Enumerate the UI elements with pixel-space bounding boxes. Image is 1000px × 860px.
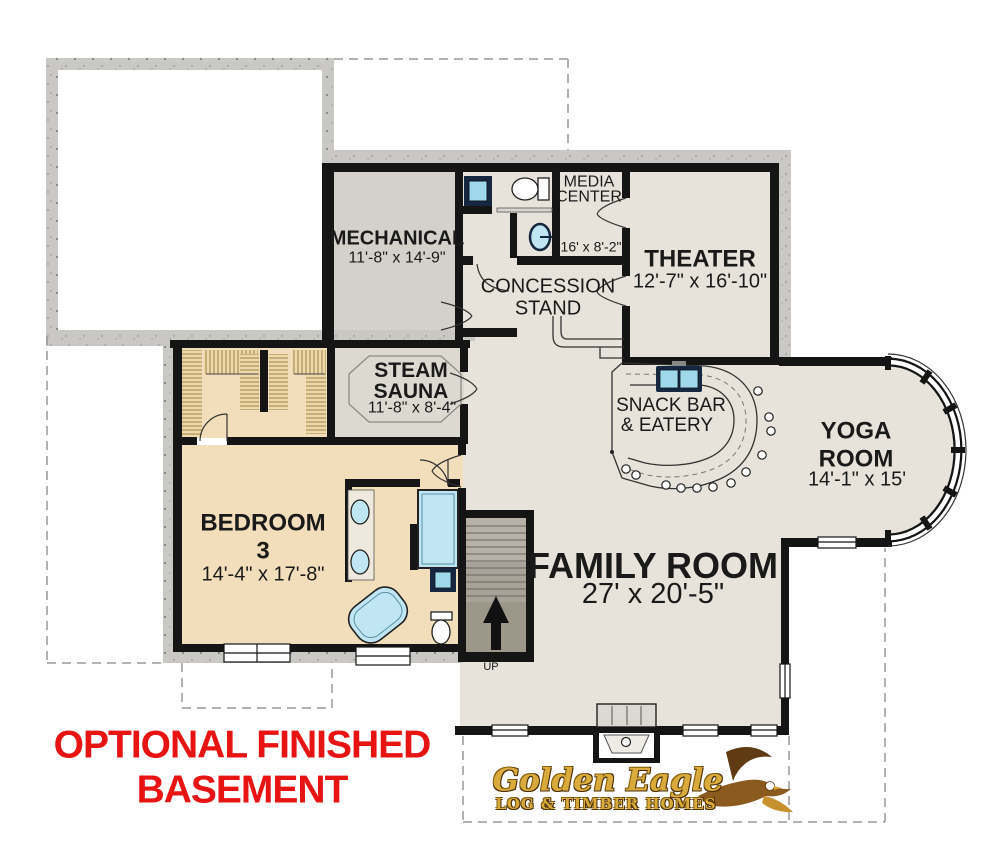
stairs-up-label: UP xyxy=(483,662,498,674)
room-dims-bedroom3: 14'-4" x 17'-8" xyxy=(201,565,324,586)
label-snack-bar-1: SNACK BAR xyxy=(616,396,726,416)
room-label-concession-1: CONCESSION xyxy=(481,277,615,298)
toilet-tank xyxy=(431,612,452,620)
floor-plan-page: MECHANICAL 11'-8" x 14'-9" MEDIA CENTER … xyxy=(0,0,1000,860)
toilet xyxy=(432,620,450,644)
room-dims-mechanical: 11'-8" x 14'-9" xyxy=(348,251,445,268)
room-dims-sauna: 11'-8" x 8'-4" xyxy=(368,401,456,418)
room-label-media-center-2: CENTER xyxy=(556,190,622,207)
room-dims-media-center: 16' x 8'-2" xyxy=(561,240,622,255)
room-label-concession-2: STAND xyxy=(515,299,581,320)
room-dims-yoga: 14'-1" x 15' xyxy=(808,470,906,491)
room-label-bedroom3-2: 3 xyxy=(256,538,269,563)
room-label-sauna-1: STEAM xyxy=(374,360,448,382)
room-dims-family: 27' x 20'-5" xyxy=(582,579,724,609)
logo-name: Golden Eagle xyxy=(493,765,724,798)
stairs xyxy=(466,518,526,652)
room-label-theater: THEATER xyxy=(644,246,756,271)
room-label-mechanical: MECHANICAL xyxy=(330,229,464,250)
room-label-bedroom3-1: BEDROOM xyxy=(200,510,325,535)
caption-line1: OPTIONAL FINISHED xyxy=(54,726,431,767)
room-label-yoga-1: YOGA xyxy=(821,418,892,443)
label-snack-bar-2: & EATERY xyxy=(621,416,713,436)
room-dims-theater: 12'-7" x 16'-10" xyxy=(633,272,767,293)
caption-line2: BASEMENT xyxy=(137,771,348,812)
fireplace xyxy=(593,704,660,763)
shower xyxy=(418,490,458,568)
logo-tagline: LOG & TIMBER HOMES xyxy=(495,797,716,813)
